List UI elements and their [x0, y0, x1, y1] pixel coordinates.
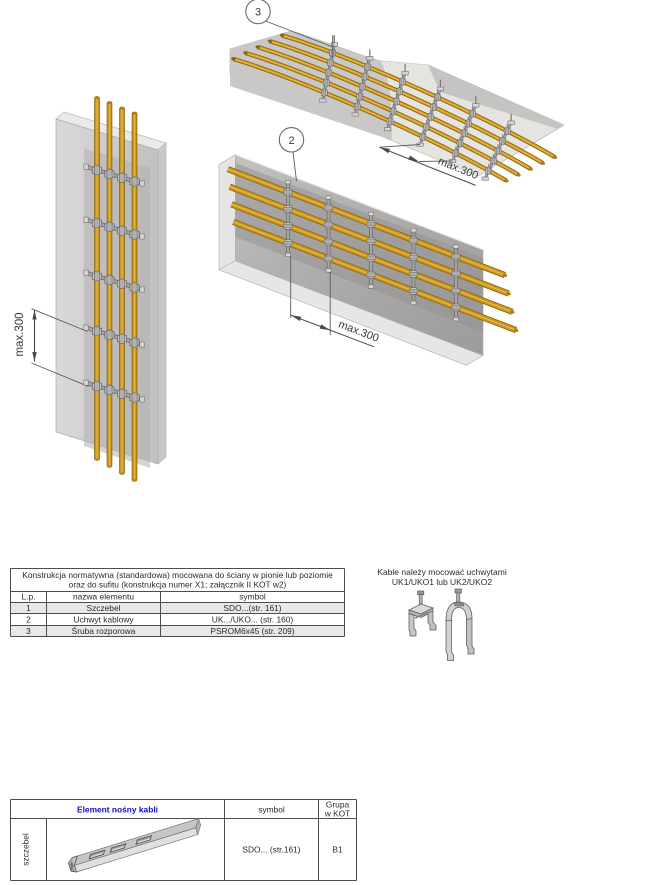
svg-text:szczebel: szczebel — [21, 833, 31, 866]
svg-text:3: 3 — [255, 7, 261, 19]
svg-text:Szczebel: Szczebel — [87, 603, 121, 613]
svg-text:UK.../UKO... (str. 160): UK.../UKO... (str. 160) — [212, 615, 294, 625]
svg-text:SDO...(str. 161): SDO...(str. 161) — [223, 603, 281, 613]
svg-text:oraz do sufitu (konstrukcja nu: oraz do sufitu (konstrukcja numer X1; za… — [69, 579, 287, 589]
svg-text:B1: B1 — [332, 845, 343, 855]
svg-text:Śruba rozporowa: Śruba rozporowa — [72, 625, 136, 636]
svg-text:Element nośny kabli: Element nośny kabli — [77, 804, 158, 814]
svg-text:nazwa elementu: nazwa elementu — [73, 592, 134, 602]
svg-text:1: 1 — [26, 603, 31, 613]
svg-text:Uchwyt kablowy: Uchwyt kablowy — [73, 615, 134, 625]
svg-text:max.300: max.300 — [14, 312, 26, 356]
svg-text:UK1/UKO1 lub UK2/UKO2: UK1/UKO1 lub UK2/UKO2 — [392, 577, 492, 587]
svg-text:SDO... (str.161): SDO... (str.161) — [242, 845, 300, 855]
svg-text:Kable należy mocować uchwytami: Kable należy mocować uchwytami — [377, 567, 507, 577]
svg-text:w KOT: w KOT — [324, 809, 351, 819]
svg-text:symbol: symbol — [239, 592, 266, 602]
svg-text:PSROM6x45 (str. 209): PSROM6x45 (str. 209) — [210, 626, 294, 636]
svg-text:2: 2 — [26, 615, 31, 625]
svg-text:3: 3 — [26, 626, 31, 636]
svg-text:symbol: symbol — [258, 804, 285, 814]
svg-text:2: 2 — [288, 135, 294, 147]
svg-text:L.p.: L.p. — [22, 592, 36, 602]
